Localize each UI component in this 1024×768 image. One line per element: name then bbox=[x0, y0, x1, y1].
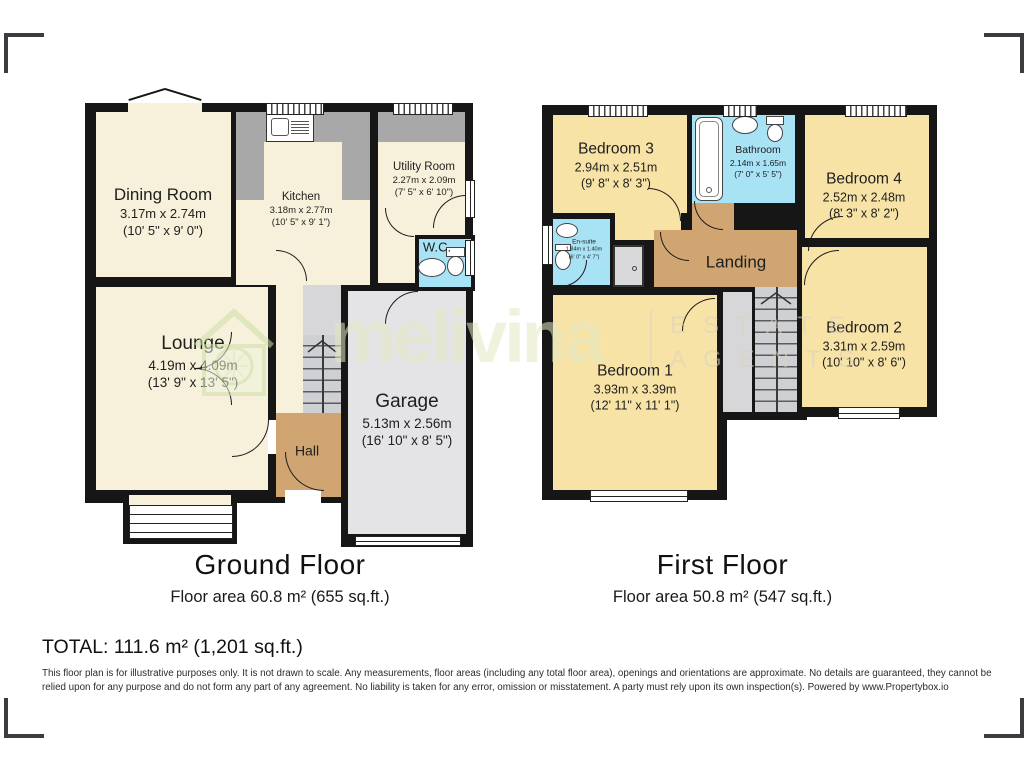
total-area: TOTAL: 111.6 m² (1,201 sq.ft.) bbox=[42, 636, 303, 659]
bay-window bbox=[129, 505, 233, 539]
room-label: Landing bbox=[706, 252, 767, 275]
room-label: Lounge 4.19m x 4.09m (13' 9" x 13' 5") bbox=[148, 332, 239, 392]
hall-corridor bbox=[276, 285, 303, 413]
stairs-up-arrow-icon bbox=[306, 338, 338, 354]
disclaimer-text: This floor plan is for illustrative purp… bbox=[42, 667, 992, 695]
room-dims-imperial: (6' 0" x 4' 7") bbox=[566, 254, 602, 261]
corner-bracket-icon bbox=[984, 33, 1024, 73]
corner-bracket-icon bbox=[984, 698, 1024, 738]
first-floor-area: Floor area 50.8 m² (547 sq.ft.) bbox=[520, 588, 925, 607]
room-name: Utility Room bbox=[393, 160, 456, 175]
room-name: Bedroom 3 bbox=[575, 140, 658, 160]
shower-icon bbox=[613, 245, 644, 287]
stair-landing-strip bbox=[303, 285, 341, 335]
window bbox=[542, 225, 553, 265]
window bbox=[590, 490, 688, 502]
room-dims-imperial: (8' 3" x 8' 2") bbox=[823, 206, 906, 222]
stair-corridor bbox=[723, 292, 752, 412]
room-name: Bathroom bbox=[730, 144, 786, 158]
ground-floor-title: Ground Floor bbox=[60, 549, 500, 581]
room-label: Garage 5.13m x 2.56m (16' 10" x 8' 5") bbox=[362, 390, 453, 450]
room-name: Bedroom 2 bbox=[822, 319, 906, 339]
drainer bbox=[291, 119, 309, 134]
window bbox=[723, 105, 757, 117]
room-label: Bathroom 2.14m x 1.65m (7' 0" x 5' 5") bbox=[730, 144, 786, 180]
room-name: Landing bbox=[706, 253, 767, 272]
room-dims-imperial: (12' 11" x 11' 1") bbox=[591, 398, 680, 414]
window bbox=[465, 240, 475, 276]
window bbox=[845, 105, 907, 117]
room-name: Bedroom 4 bbox=[823, 170, 906, 190]
door-opening bbox=[268, 420, 276, 454]
dining-bay-opening bbox=[128, 103, 202, 112]
window bbox=[838, 407, 900, 419]
window bbox=[465, 180, 475, 218]
room-label: Bedroom 2 3.31m x 2.59m (10' 10" x 8' 6"… bbox=[822, 319, 906, 372]
first-floor-plan: Bedroom 3 2.94m x 2.51m (9' 8" x 8' 3") … bbox=[542, 100, 937, 502]
room-dims-metric: 1.84m x 1.40m bbox=[566, 247, 602, 254]
room-dims-imperial: (7' 5" x 6' 10") bbox=[393, 187, 456, 199]
room-dims-metric: 3.17m x 2.74m bbox=[114, 206, 212, 223]
room-label: En-suite 1.84m x 1.40m (6' 0" x 4' 7") bbox=[566, 239, 602, 262]
ground-floor-plan: Dining Room 3.17m x 2.74m (10' 5" x 9' 0… bbox=[85, 100, 480, 548]
room-dims-metric: 2.52m x 2.48m bbox=[823, 190, 906, 206]
room-label: Dining Room 3.17m x 2.74m (10' 5" x 9' 0… bbox=[114, 184, 212, 240]
bay-floor bbox=[129, 495, 231, 505]
room-dims-metric: 5.13m x 2.56m bbox=[362, 415, 453, 433]
room-dims-imperial: (13' 9" x 13' 5") bbox=[148, 374, 239, 392]
stairs-up-arrow-icon bbox=[759, 290, 793, 306]
room-name: Hall bbox=[295, 443, 319, 459]
corner-bracket-icon bbox=[4, 698, 44, 738]
toilet-icon bbox=[447, 256, 464, 276]
room-label: Hall bbox=[295, 442, 319, 463]
utility-counter bbox=[378, 112, 465, 142]
toilet-icon bbox=[767, 124, 783, 142]
kitchen-counter bbox=[236, 142, 264, 200]
room-dims-imperial: (10' 5" x 9' 0") bbox=[114, 223, 212, 240]
first-floor-caption: First Floor Floor area 50.8 m² (547 sq.f… bbox=[520, 549, 925, 607]
front-door-opening bbox=[285, 490, 321, 503]
sink-basin bbox=[271, 118, 289, 136]
room-label: Utility Room 2.27m x 2.09m (7' 5" x 6' 1… bbox=[393, 160, 456, 200]
room-name: Lounge bbox=[148, 332, 239, 357]
room-name: Garage bbox=[362, 390, 453, 415]
corner-bracket-icon bbox=[4, 33, 44, 73]
kitchen-counter bbox=[342, 142, 370, 200]
room-name: Dining Room bbox=[114, 184, 212, 206]
room-dims-metric: 3.93m x 3.39m bbox=[591, 382, 680, 398]
bathtub-icon bbox=[695, 117, 723, 201]
room-dims-metric: 3.31m x 2.59m bbox=[822, 339, 906, 355]
room-label: Kitchen 3.18m x 2.77m (10' 5" x 9' 1") bbox=[270, 190, 333, 230]
window-leaf bbox=[128, 88, 165, 101]
ground-floor-area: Floor area 60.8 m² (655 sq.ft.) bbox=[60, 588, 500, 607]
room-dims-imperial: (16' 10" x 8' 5") bbox=[362, 432, 453, 450]
kitchen-sink-icon bbox=[266, 114, 314, 142]
room-dims-imperial: (9' 8" x 8' 3") bbox=[575, 176, 658, 192]
room-name: W.C. bbox=[423, 240, 451, 255]
room-name: En-suite bbox=[566, 239, 602, 247]
first-floor-title: First Floor bbox=[520, 549, 925, 581]
room-name: Bedroom 1 bbox=[591, 362, 680, 382]
room-dims-imperial: (7' 0" x 5' 5") bbox=[730, 169, 786, 180]
window-leaf bbox=[165, 88, 202, 101]
window bbox=[266, 103, 324, 115]
room-name: Kitchen bbox=[270, 190, 333, 205]
room-dims-metric: 4.19m x 4.09m bbox=[148, 357, 239, 375]
room-dims-imperial: (10' 10" x 8' 6") bbox=[822, 355, 906, 371]
room-dims-imperial: (10' 5" x 9' 1") bbox=[270, 217, 333, 229]
room-label: W.C. bbox=[423, 238, 451, 259]
room-dims-metric: 2.27m x 2.09m bbox=[393, 175, 456, 187]
window bbox=[588, 105, 648, 117]
sink-icon bbox=[732, 116, 758, 134]
room-label: Bedroom 4 2.52m x 2.48m (8' 3" x 8' 2") bbox=[823, 170, 906, 223]
sink-icon bbox=[556, 223, 578, 238]
garage-door bbox=[355, 536, 461, 546]
room-label: Bedroom 3 2.94m x 2.51m (9' 8" x 8' 3") bbox=[575, 140, 658, 193]
room-label: Bedroom 1 3.93m x 3.39m (12' 11" x 11' 1… bbox=[591, 362, 680, 415]
room-dims-metric: 2.14m x 1.65m bbox=[730, 158, 786, 169]
window bbox=[393, 103, 453, 115]
sink-icon bbox=[418, 258, 446, 277]
room-dims-metric: 2.94m x 2.51m bbox=[575, 160, 658, 176]
ground-floor-caption: Ground Floor Floor area 60.8 m² (655 sq.… bbox=[60, 549, 500, 607]
room-dims-metric: 3.18m x 2.77m bbox=[270, 205, 333, 217]
